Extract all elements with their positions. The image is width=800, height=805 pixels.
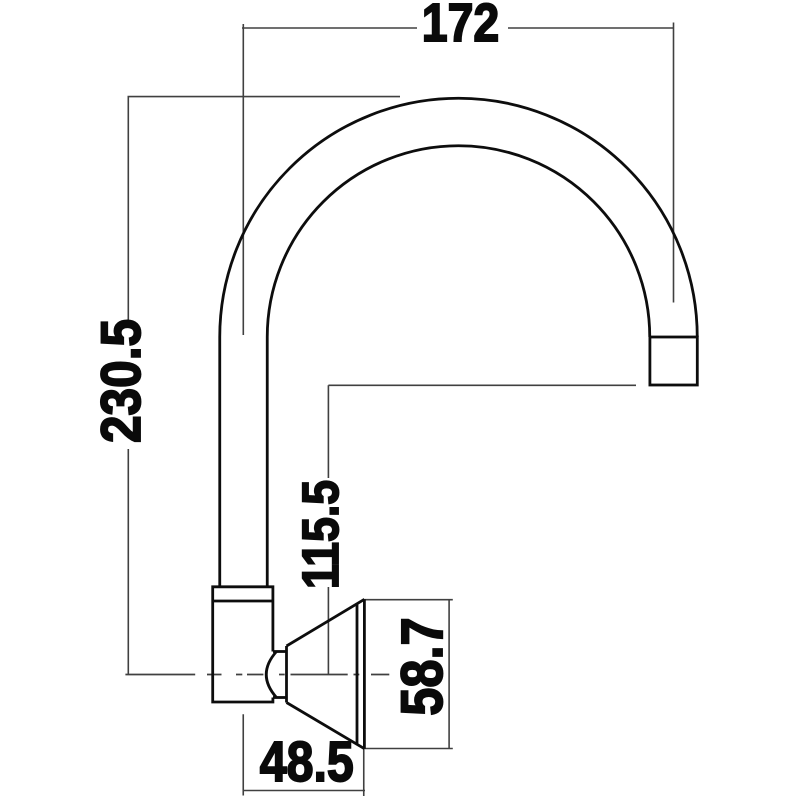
svg-text:115.5: 115.5	[293, 480, 349, 589]
svg-text:48.5: 48.5	[260, 730, 354, 794]
svg-text:172: 172	[422, 0, 500, 53]
svg-text:58.7: 58.7	[390, 617, 455, 715]
svg-text:230.5: 230.5	[90, 319, 152, 443]
